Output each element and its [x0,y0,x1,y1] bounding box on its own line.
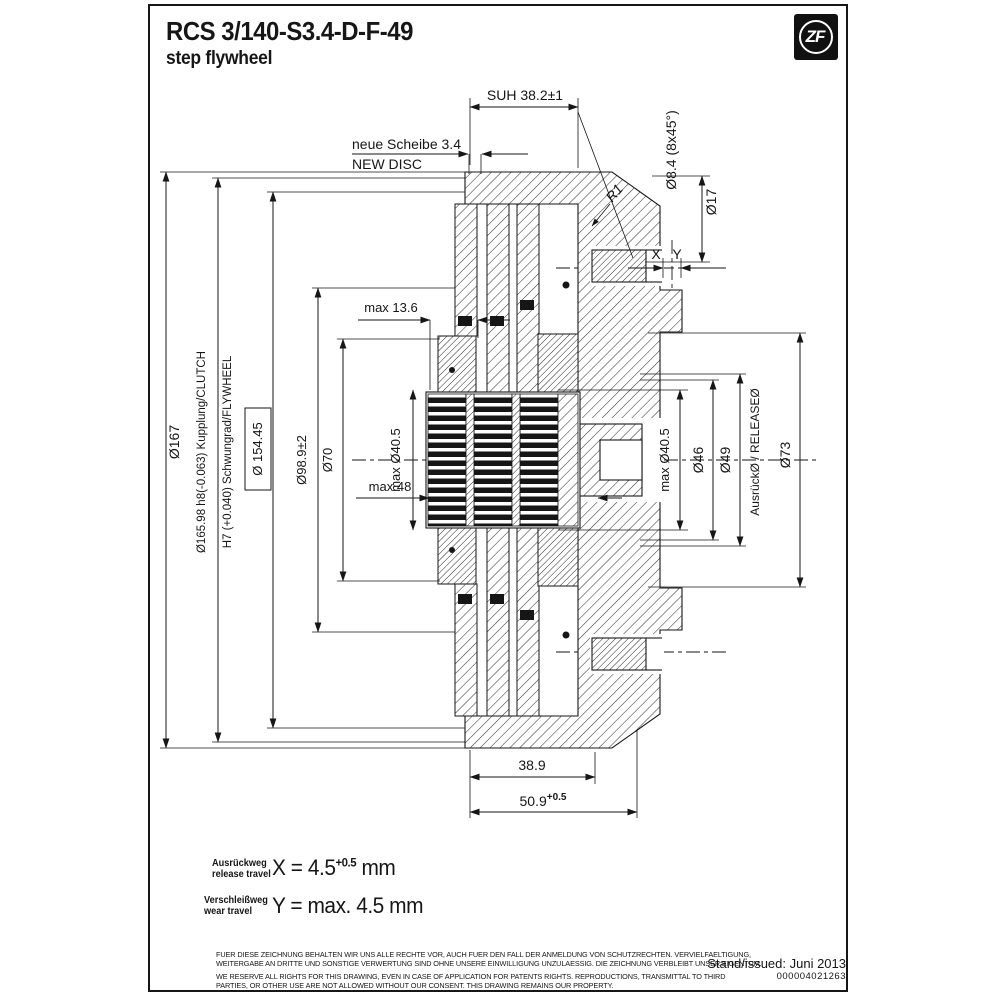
wear-travel-label-de: Verschleißweg [204,895,268,906]
wear-travel-label-en: wear travel [204,906,268,917]
release-travel-label-de: Ausrückweg [212,858,271,869]
dim-d49: Ø49 [717,447,733,474]
dim-new-disc-en: NEW DISC [352,156,422,172]
dim-d165: Ø165.98 h8(-0.063) Kupplung/CLUTCH [196,351,208,553]
dim-d73: Ø73 [777,442,793,469]
dim-new-disc-de: neue Scheibe 3.4 [352,136,461,152]
dim-max48: max 48 [369,479,412,494]
wear-travel-equation: Y = max. 4.5 mm [272,893,423,919]
footer-disclaimer-de-2: WEITERGABE AN DRITTE UND SONSTIGE VERWER… [216,959,762,968]
dim-suh: SUH 38.2±1 [487,87,563,103]
dim-d167: Ø167 [166,425,182,459]
footer-disclaimer-en-1: WE RESERVE ALL RIGHTS FOR THIS DRAWING, … [216,972,762,981]
release-travel-tolerance: +0.5 [336,856,357,870]
wear-travel-value: Y = max. 4.5 mm [272,893,423,918]
dim-d17: Ø17 [703,189,719,216]
release-travel-label-en: release travel [212,869,271,880]
release-travel-equation: X = 4.5+0.5 mm [272,855,395,881]
footer-disclaimer-en-2: PARTIES, OR OTHER USE ARE NOT ALLOWED WI… [216,981,762,990]
dim-h7: H7 (+0.040) Schwungrad/FLYWHEEL [222,355,234,548]
footer-disclaimer-de-1: FUER DIESE ZEICHNUNG BEHALTEN WIR UNS AL… [216,950,762,959]
technical-drawing: SUH 38.2±1 Ø8.4 (8x45°) Ø17 R1 neue Sche… [0,0,1000,1000]
dim-d98: Ø98.9±2 [294,435,309,485]
release-travel-value: X = 4.5 [272,855,336,880]
page: RCS 3/140-S3.4-D-F-49 step flywheel ZF [0,0,1000,1000]
issued-date: Stand/issued: Juni 2013 [707,956,846,971]
release-travel-unit: mm [356,855,395,880]
footer-disclaimer: FUER DIESE ZEICHNUNG BEHALTEN WIR UNS AL… [216,950,784,990]
dim-d154: Ø 154.45 [250,422,265,476]
spline-hub [426,392,580,528]
dim-x: X [651,246,661,262]
release-travel-label: Ausrückweg release travel [212,858,271,880]
wear-travel-label: Verschleißweg wear travel [204,895,268,917]
document-number: 000004021263 [777,971,846,982]
dim-d46: Ø46 [690,447,706,474]
dim-d509: 50.9+0.5 [520,792,567,809]
dim-d70: Ø70 [320,448,335,473]
dim-release: AusrückØ / RELEASEØ [748,388,762,515]
dim-d389: 38.9 [518,757,545,773]
dim-chamfer: Ø8.4 (8x45°) [663,110,679,190]
dim-y: Y [672,246,682,262]
dim-max405-right: max Ø40.5 [657,428,672,492]
dim-max136: max 13.6 [364,300,417,315]
